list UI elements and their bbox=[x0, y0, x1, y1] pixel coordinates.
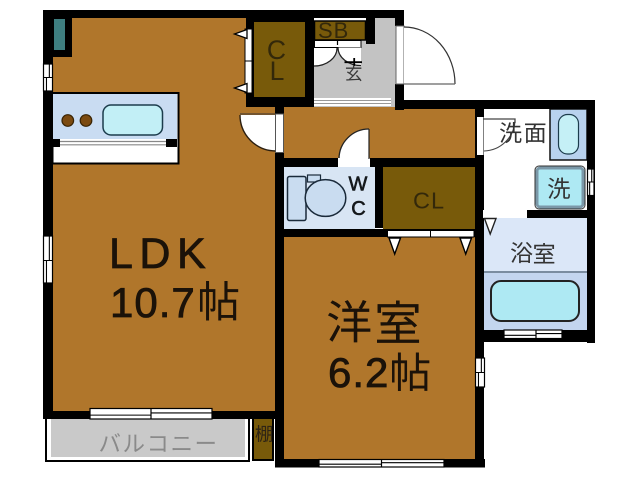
svg-text:10.7: 10.7 bbox=[110, 279, 196, 326]
svg-text:LDK: LDK bbox=[109, 230, 212, 278]
svg-text:L: L bbox=[270, 56, 285, 86]
svg-text:6.2: 6.2 bbox=[328, 349, 389, 396]
svg-text:CL: CL bbox=[413, 188, 445, 214]
svg-text:C: C bbox=[351, 198, 365, 220]
svg-text:SB: SB bbox=[318, 18, 349, 43]
svg-text:W: W bbox=[349, 174, 368, 196]
